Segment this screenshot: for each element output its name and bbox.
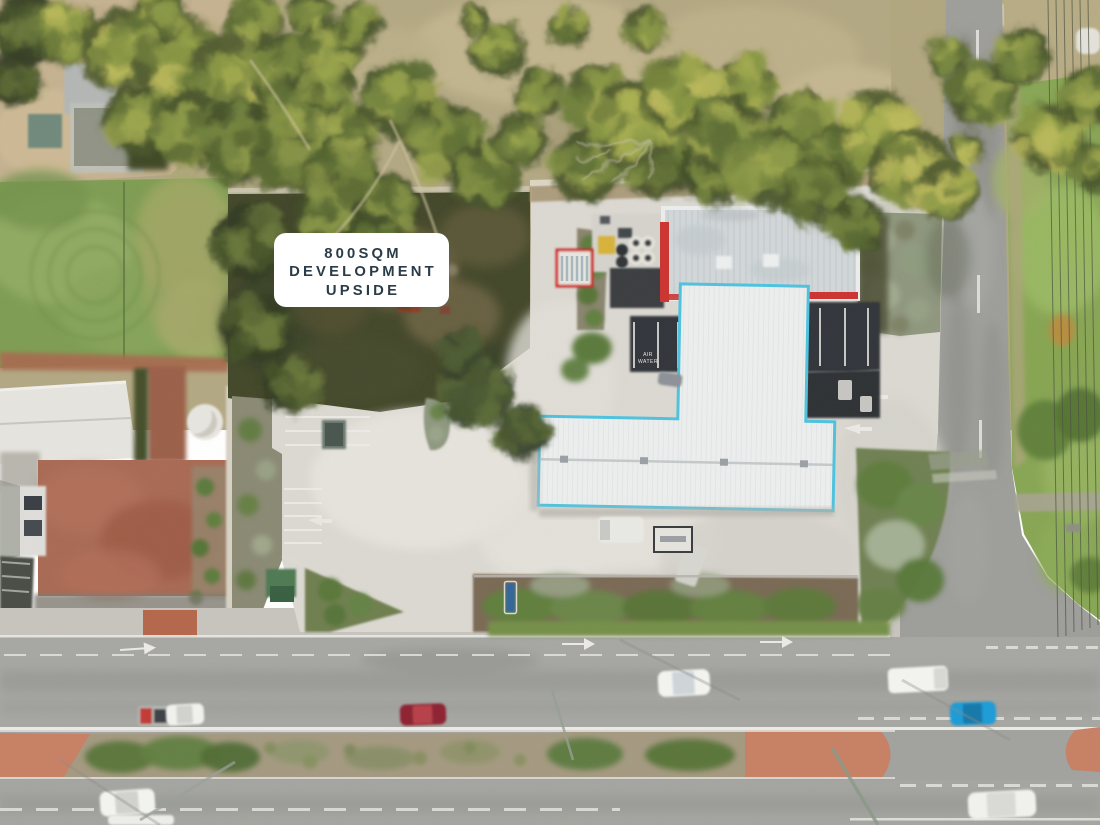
svg-text:UPSIDE: UPSIDE [326, 283, 400, 299]
svg-text:800SQM: 800SQM [324, 246, 402, 262]
svg-text:DEVELOPMENT: DEVELOPMENT [289, 264, 437, 280]
